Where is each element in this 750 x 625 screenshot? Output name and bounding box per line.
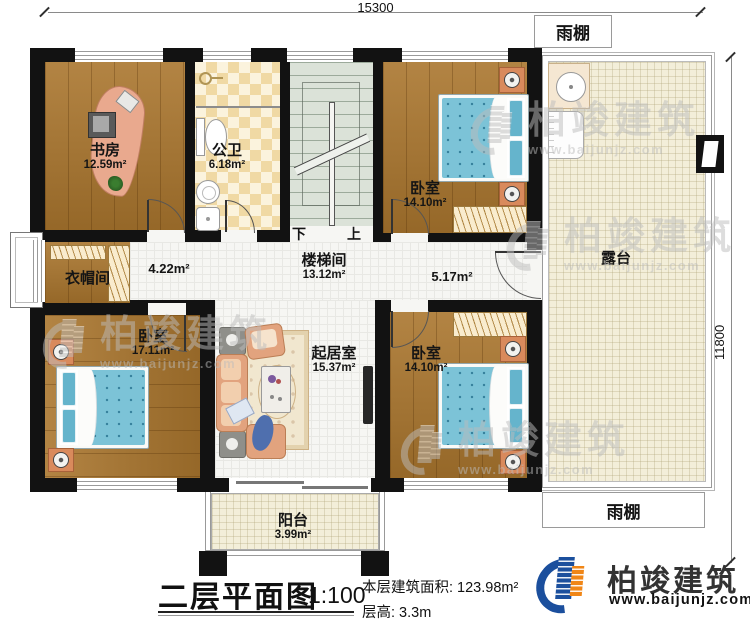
canopy-bottom: 雨棚 — [542, 492, 705, 528]
door-opening — [148, 303, 186, 315]
terrace-name: 露台 — [586, 250, 646, 267]
faucet-stem — [211, 77, 223, 79]
bed — [438, 94, 529, 182]
bedroom-ne-area: 14.10m² — [394, 197, 456, 210]
stairwell-name: 楼梯间 — [279, 252, 369, 269]
hallway-west-area: 4.22m² — [138, 262, 200, 277]
stairs-down-label: 下 — [290, 226, 308, 242]
bedroom-se-name: 卧室 — [395, 345, 457, 362]
wardrobe — [453, 312, 527, 337]
bedroom-se-area: 14.10m² — [395, 362, 457, 375]
title-underline — [158, 615, 354, 616]
hallway-east-area: 5.17m² — [420, 270, 484, 285]
computer-monitor — [88, 112, 116, 138]
armchair — [244, 323, 286, 361]
window — [404, 478, 508, 492]
window — [287, 48, 353, 62]
bed — [56, 366, 149, 449]
living-name: 起居室 — [302, 345, 366, 362]
window — [402, 48, 508, 62]
terrace-sink-counter — [548, 63, 590, 109]
balcony-post — [361, 551, 389, 576]
plan-scale: 1:100 — [308, 582, 366, 609]
canopy-top: 雨棚 — [534, 15, 612, 48]
dimension-height-line — [731, 57, 732, 563]
side-table — [219, 431, 246, 458]
nightstand — [500, 450, 526, 474]
floor-plan-page: 15300 11800 雨棚 雨棚 露台 — [0, 0, 750, 625]
bedroom-ne-name: 卧室 — [394, 180, 456, 197]
nightstand — [48, 448, 74, 472]
room-label-bedroom-sw: 卧室 17.11m² — [122, 328, 184, 358]
brand-website: www.baijunjz.com — [609, 592, 750, 608]
bedroom-sw-name: 卧室 — [122, 328, 184, 345]
wardrobe — [453, 206, 527, 233]
bathroom-name: 公卫 — [198, 142, 256, 159]
brand-logo-icon — [531, 554, 595, 618]
floor-height-text: 层高: 3.3m — [362, 601, 431, 622]
nightstand — [499, 182, 525, 206]
side-table — [219, 327, 246, 355]
dimension-height-label: 11800 — [712, 325, 727, 360]
balcony-area: 3.99m² — [262, 529, 324, 542]
nightstand — [500, 336, 526, 362]
terrace-column — [696, 135, 724, 173]
room-label-living: 起居室 15.37m² — [302, 345, 366, 375]
coffee-table — [261, 366, 291, 413]
sink — [196, 180, 220, 204]
stairs-up-label: 上 — [345, 226, 363, 242]
terrace — [542, 55, 712, 488]
room-stairwell-floor — [290, 62, 373, 226]
stair-rail — [329, 102, 335, 226]
balcony-rail — [379, 492, 385, 552]
room-label-hallway-west: 4.22m² — [138, 262, 200, 277]
room-label-bedroom-ne: 卧室 14.10m² — [394, 180, 456, 210]
dimension-width-line — [48, 12, 703, 13]
room-label-terrace: 露台 — [586, 250, 646, 267]
sliding-door — [229, 478, 371, 492]
study-area: 12.59m² — [60, 159, 150, 172]
door-leaf — [391, 311, 393, 347]
terrace-sink-basin — [556, 72, 586, 102]
door-leaf — [495, 251, 541, 253]
room-label-bedroom-se: 卧室 14.10m² — [395, 345, 457, 375]
door-leaf — [225, 200, 227, 232]
window — [77, 478, 177, 492]
study-name: 书房 — [60, 142, 150, 159]
living-area: 15.37m² — [302, 362, 366, 375]
stairwell-area: 13.12m² — [279, 269, 369, 282]
balcony-name: 阳台 — [262, 512, 324, 529]
washing-machine — [548, 111, 584, 159]
shower-tray — [196, 207, 220, 231]
room-label-study: 书房 12.59m² — [60, 142, 150, 172]
window — [75, 48, 163, 62]
plant — [108, 176, 123, 191]
plan-title: 二层平面图 — [158, 572, 318, 616]
title-underline — [158, 611, 354, 613]
room-label-cloakroom: 衣帽间 — [45, 270, 130, 287]
room-label-balcony: 阳台 3.99m² — [262, 512, 324, 542]
window — [203, 48, 251, 62]
window — [30, 240, 45, 302]
bed — [438, 363, 529, 449]
nightstand — [499, 67, 525, 93]
canopy-top-label: 雨棚 — [556, 19, 590, 44]
bedroom-sw-area: 17.11m² — [122, 345, 184, 358]
cloakroom-name: 衣帽间 — [45, 270, 130, 287]
floor-area-text: 本层建筑面积: 123.98m² — [362, 576, 518, 597]
canopy-bottom-label: 雨棚 — [607, 498, 641, 523]
bathroom-area: 6.18m² — [198, 159, 256, 172]
door-leaf — [147, 200, 149, 232]
nightstand — [48, 339, 74, 365]
wardrobe — [50, 245, 106, 260]
door-leaf — [184, 315, 186, 351]
room-label-bathroom: 公卫 6.18m² — [198, 142, 256, 172]
bathroom-partition — [196, 106, 280, 108]
door-leaf — [391, 199, 393, 234]
balcony-rail — [205, 550, 385, 556]
room-label-hallway-east: 5.17m² — [420, 270, 484, 285]
room-label-stairwell: 楼梯间 13.12m² — [279, 252, 369, 282]
